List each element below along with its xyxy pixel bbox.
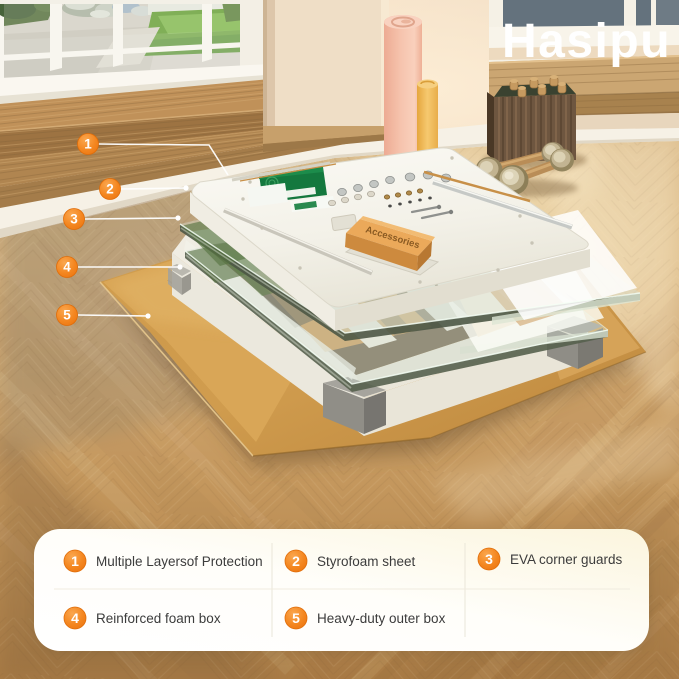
svg-text:Styrofoam sheet: Styrofoam sheet <box>317 554 416 569</box>
svg-text:3: 3 <box>70 212 78 227</box>
svg-text:2: 2 <box>292 553 300 569</box>
svg-text:1: 1 <box>71 553 79 569</box>
svg-text:3: 3 <box>485 551 493 567</box>
svg-text:Hasipu: Hasipu <box>502 15 671 68</box>
svg-text:5: 5 <box>63 308 71 323</box>
svg-text:5: 5 <box>292 610 300 626</box>
svg-text:1: 1 <box>84 137 92 152</box>
svg-text:EVA corner guards: EVA corner guards <box>510 552 623 567</box>
svg-text:Heavy-duty outer box: Heavy-duty outer box <box>317 611 446 626</box>
svg-text:4: 4 <box>71 610 79 626</box>
svg-text:4: 4 <box>63 260 71 275</box>
svg-text:Reinforced foam box: Reinforced foam box <box>96 611 221 626</box>
svg-text:2: 2 <box>106 182 114 197</box>
svg-text:Multiple Layersof Protection: Multiple Layersof Protection <box>96 554 263 569</box>
